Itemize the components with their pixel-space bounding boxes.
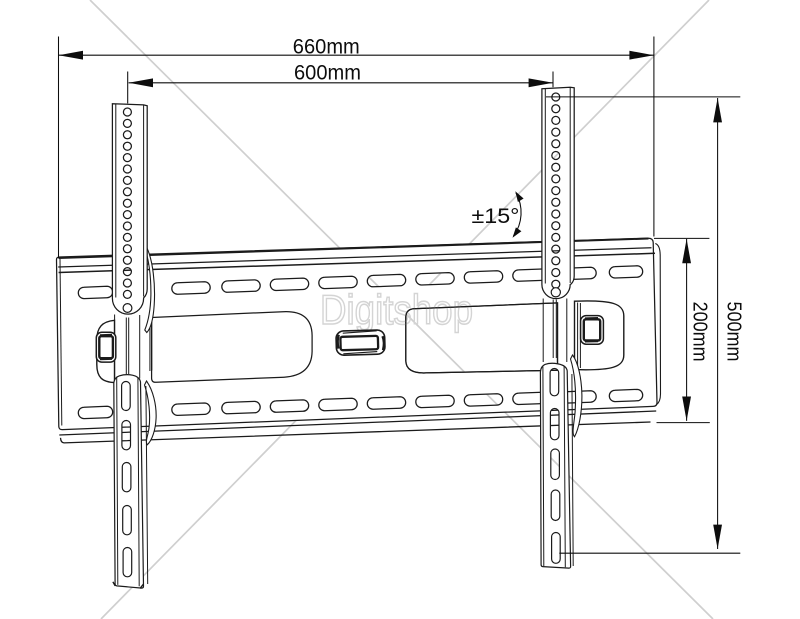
svg-text:660mm: 660mm	[293, 35, 360, 58]
svg-text:±15°: ±15°	[472, 205, 520, 228]
svg-text:500mm: 500mm	[723, 302, 745, 362]
svg-text:Digitshop: Digitshop	[320, 286, 473, 333]
svg-text:200mm: 200mm	[688, 302, 710, 362]
svg-text:600mm: 600mm	[294, 61, 361, 84]
